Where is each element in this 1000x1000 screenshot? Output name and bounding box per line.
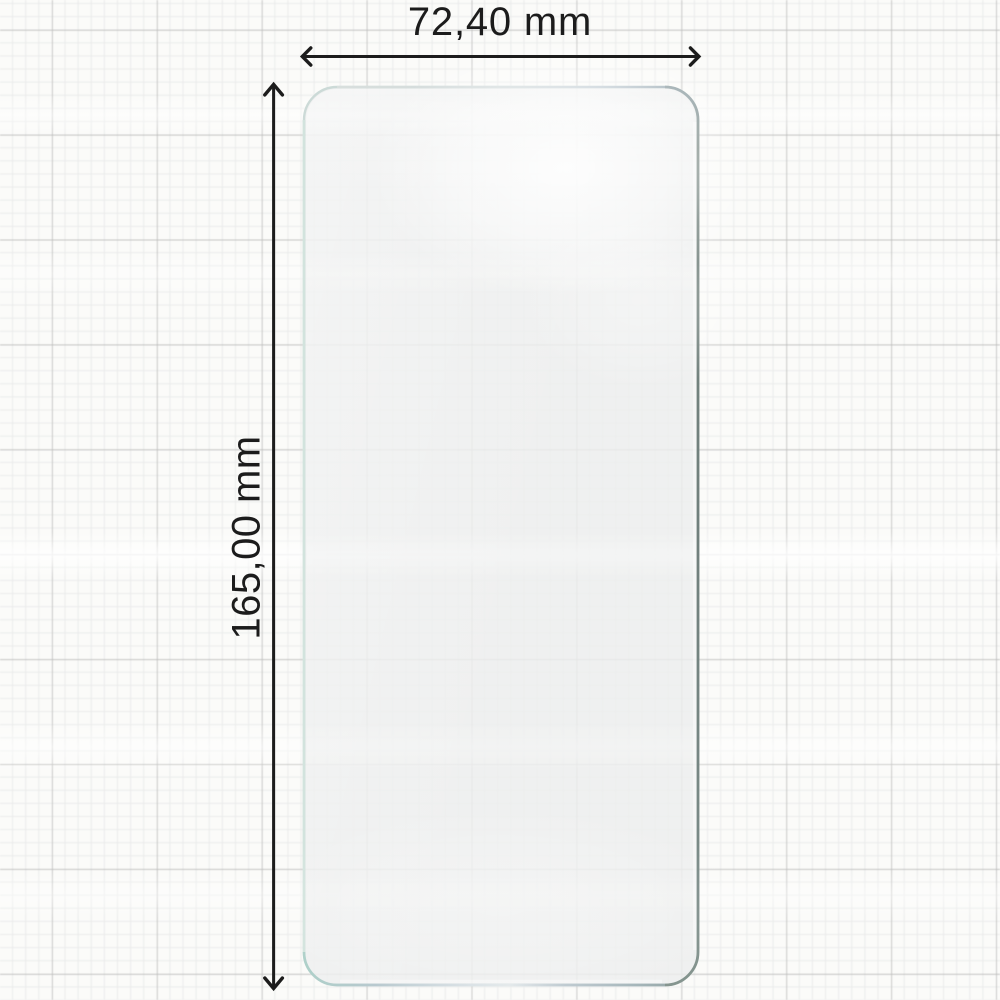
svg-text:165,00 mm: 165,00 mm bbox=[225, 435, 269, 639]
svg-text:72,40 mm: 72,40 mm bbox=[408, 0, 592, 44]
